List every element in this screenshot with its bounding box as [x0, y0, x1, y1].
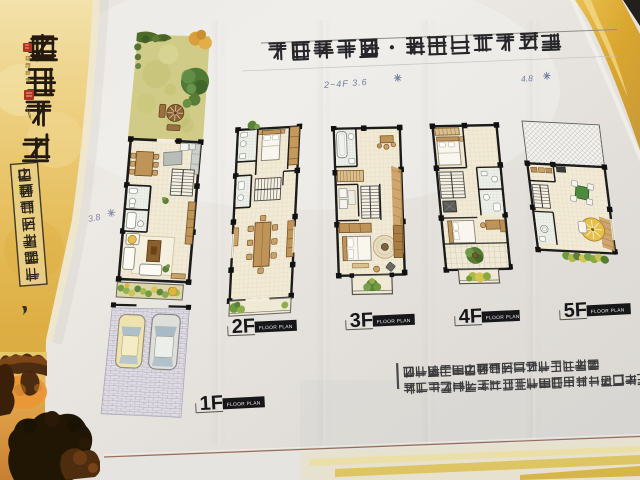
svg-text:3F: 3F	[349, 309, 373, 332]
svg-text:1F: 1F	[199, 392, 223, 415]
svg-text:5F: 5F	[563, 299, 587, 322]
svg-text:3.8: 3.8	[87, 212, 101, 224]
svg-text:4F: 4F	[458, 305, 482, 328]
svg-text:4.8: 4.8	[521, 73, 534, 84]
svg-text:2F: 2F	[231, 315, 255, 338]
